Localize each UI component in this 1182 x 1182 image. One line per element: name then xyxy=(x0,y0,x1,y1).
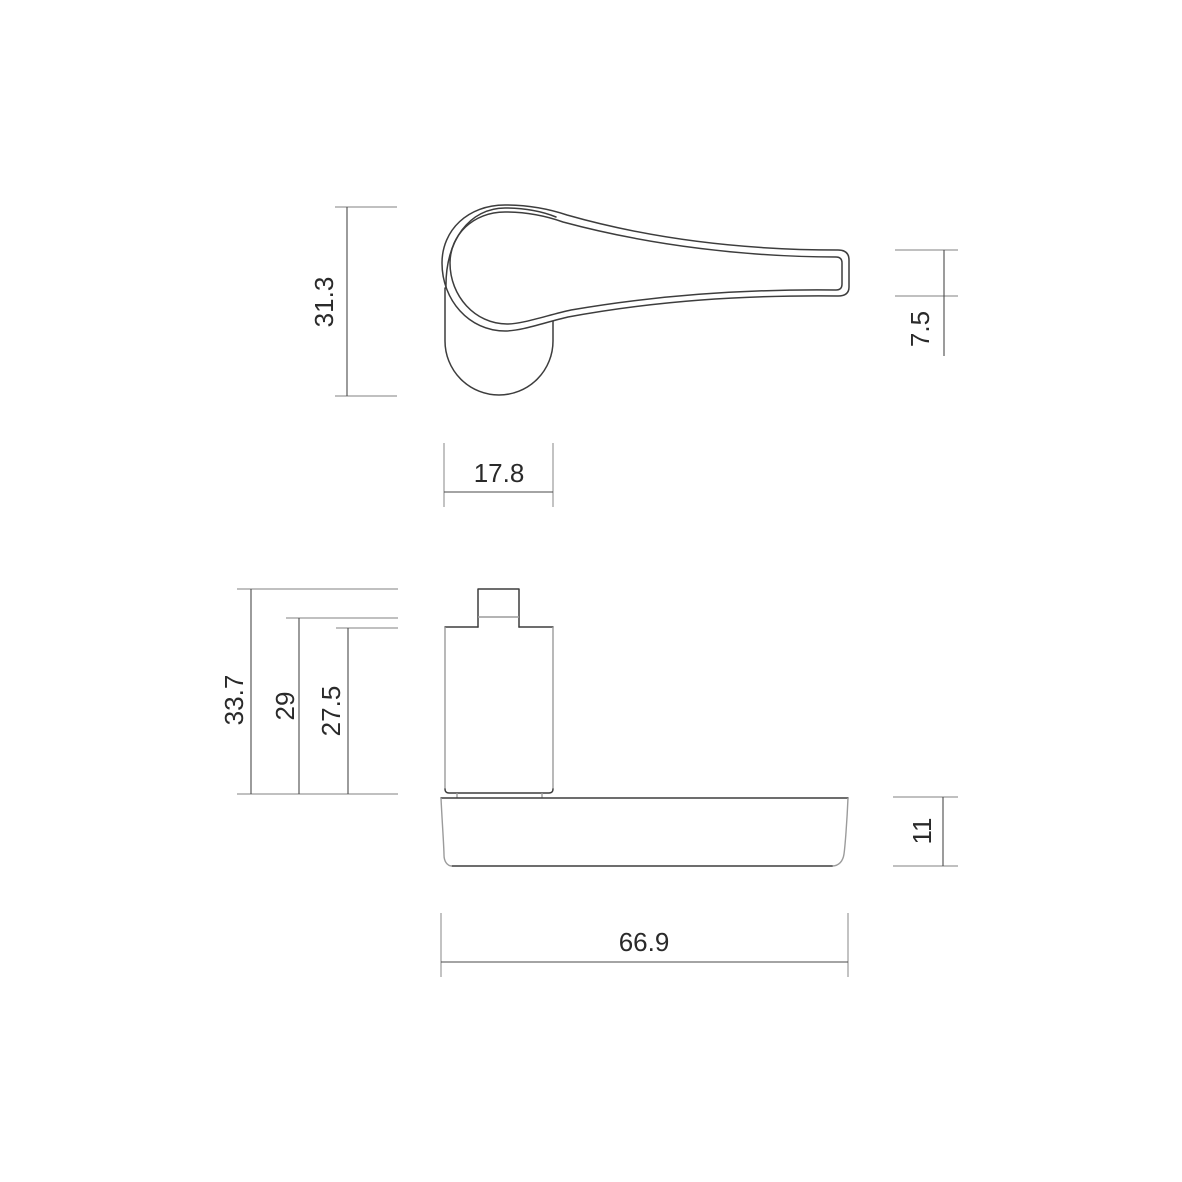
technical-drawing-page: 31.3 7.5 17.8 xyxy=(0,0,1182,1182)
dim-plan-overall-depth: 31.3 xyxy=(309,207,397,396)
dim-label-27-5: 27.5 xyxy=(316,686,346,737)
dim-lever-end-thickness: 7.5 xyxy=(895,250,958,356)
dim-label-7-5: 7.5 xyxy=(905,311,935,347)
dim-label-11: 11 xyxy=(907,818,937,845)
dim-label-17-8: 17.8 xyxy=(474,458,525,488)
dim-label-29: 29 xyxy=(270,692,300,721)
plan-view xyxy=(442,205,849,395)
side-lever-fill xyxy=(441,798,848,866)
side-view xyxy=(441,589,848,866)
dim-overall-length: 66.9 xyxy=(441,913,848,977)
dim-lever-profile-height: 11 xyxy=(893,797,958,866)
dim-overall-height: 33.7 xyxy=(219,589,398,794)
door-handle-technical-drawing: 31.3 7.5 17.8 xyxy=(0,0,1182,1182)
dim-rose-body-height: 27.5 xyxy=(316,628,398,794)
dim-label-33-7: 33.7 xyxy=(219,675,249,726)
plan-lever-fill xyxy=(442,205,849,331)
dim-label-66-9: 66.9 xyxy=(619,927,670,957)
dim-label-31-3: 31.3 xyxy=(309,277,339,328)
side-spindle-fill xyxy=(478,589,519,627)
dim-rose-width: 17.8 xyxy=(444,443,553,507)
side-rose-fill xyxy=(445,627,553,793)
